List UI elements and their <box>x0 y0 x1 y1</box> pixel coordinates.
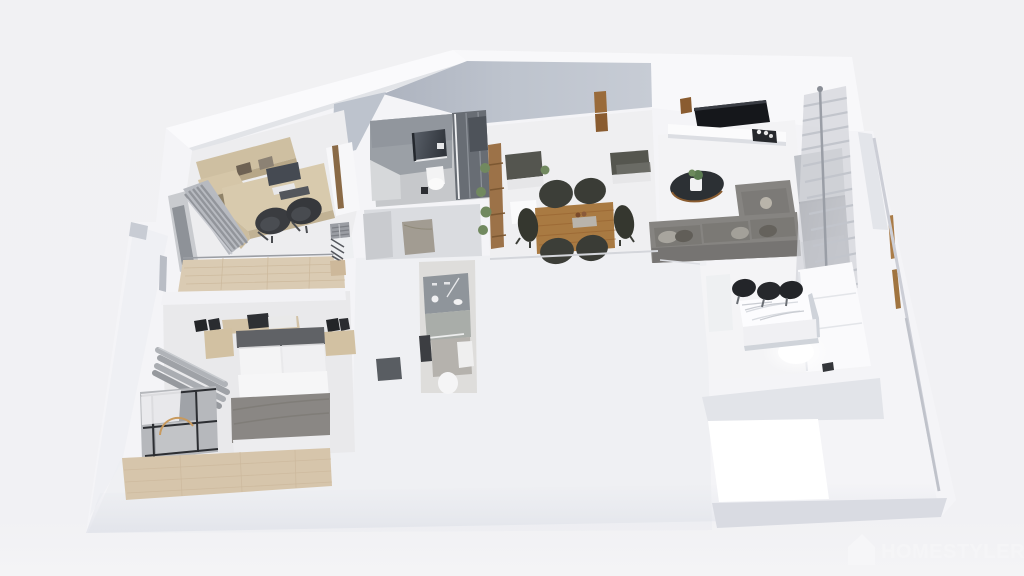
svg-text:HOMESTYLER: HOMESTYLER <box>881 541 1024 563</box>
